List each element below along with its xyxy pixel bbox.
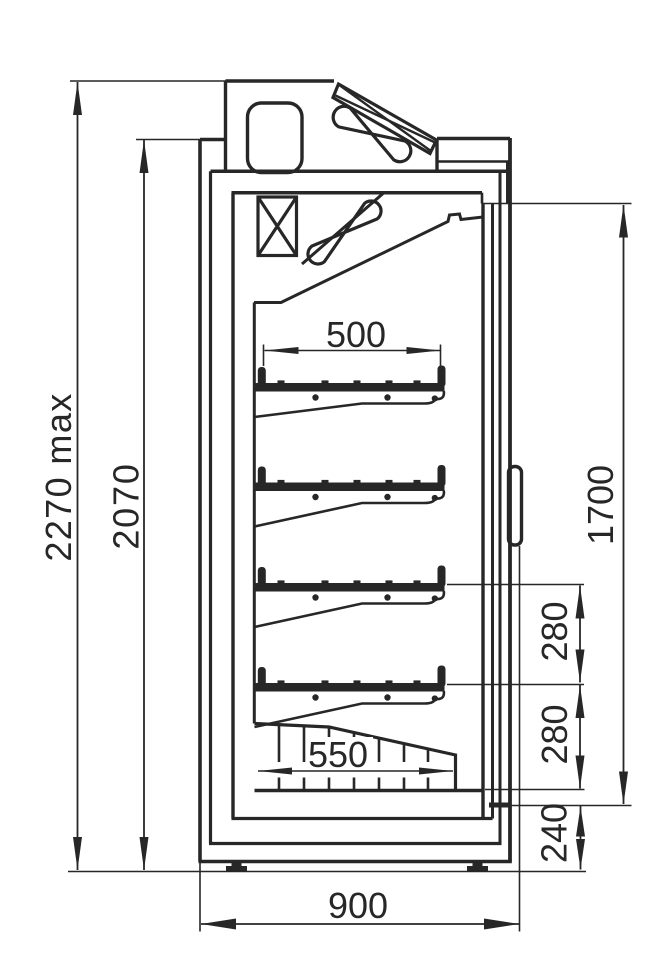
svg-text:280: 280 [534, 704, 575, 764]
svg-text:2070: 2070 [106, 462, 147, 549]
svg-text:2270 max: 2270 max [38, 392, 79, 561]
svg-text:1700: 1700 [580, 465, 621, 545]
svg-text:550: 550 [308, 734, 368, 775]
svg-text:280: 280 [534, 601, 575, 661]
svg-text:900: 900 [328, 885, 388, 926]
svg-text:500: 500 [326, 314, 386, 355]
svg-text:240: 240 [534, 803, 575, 863]
